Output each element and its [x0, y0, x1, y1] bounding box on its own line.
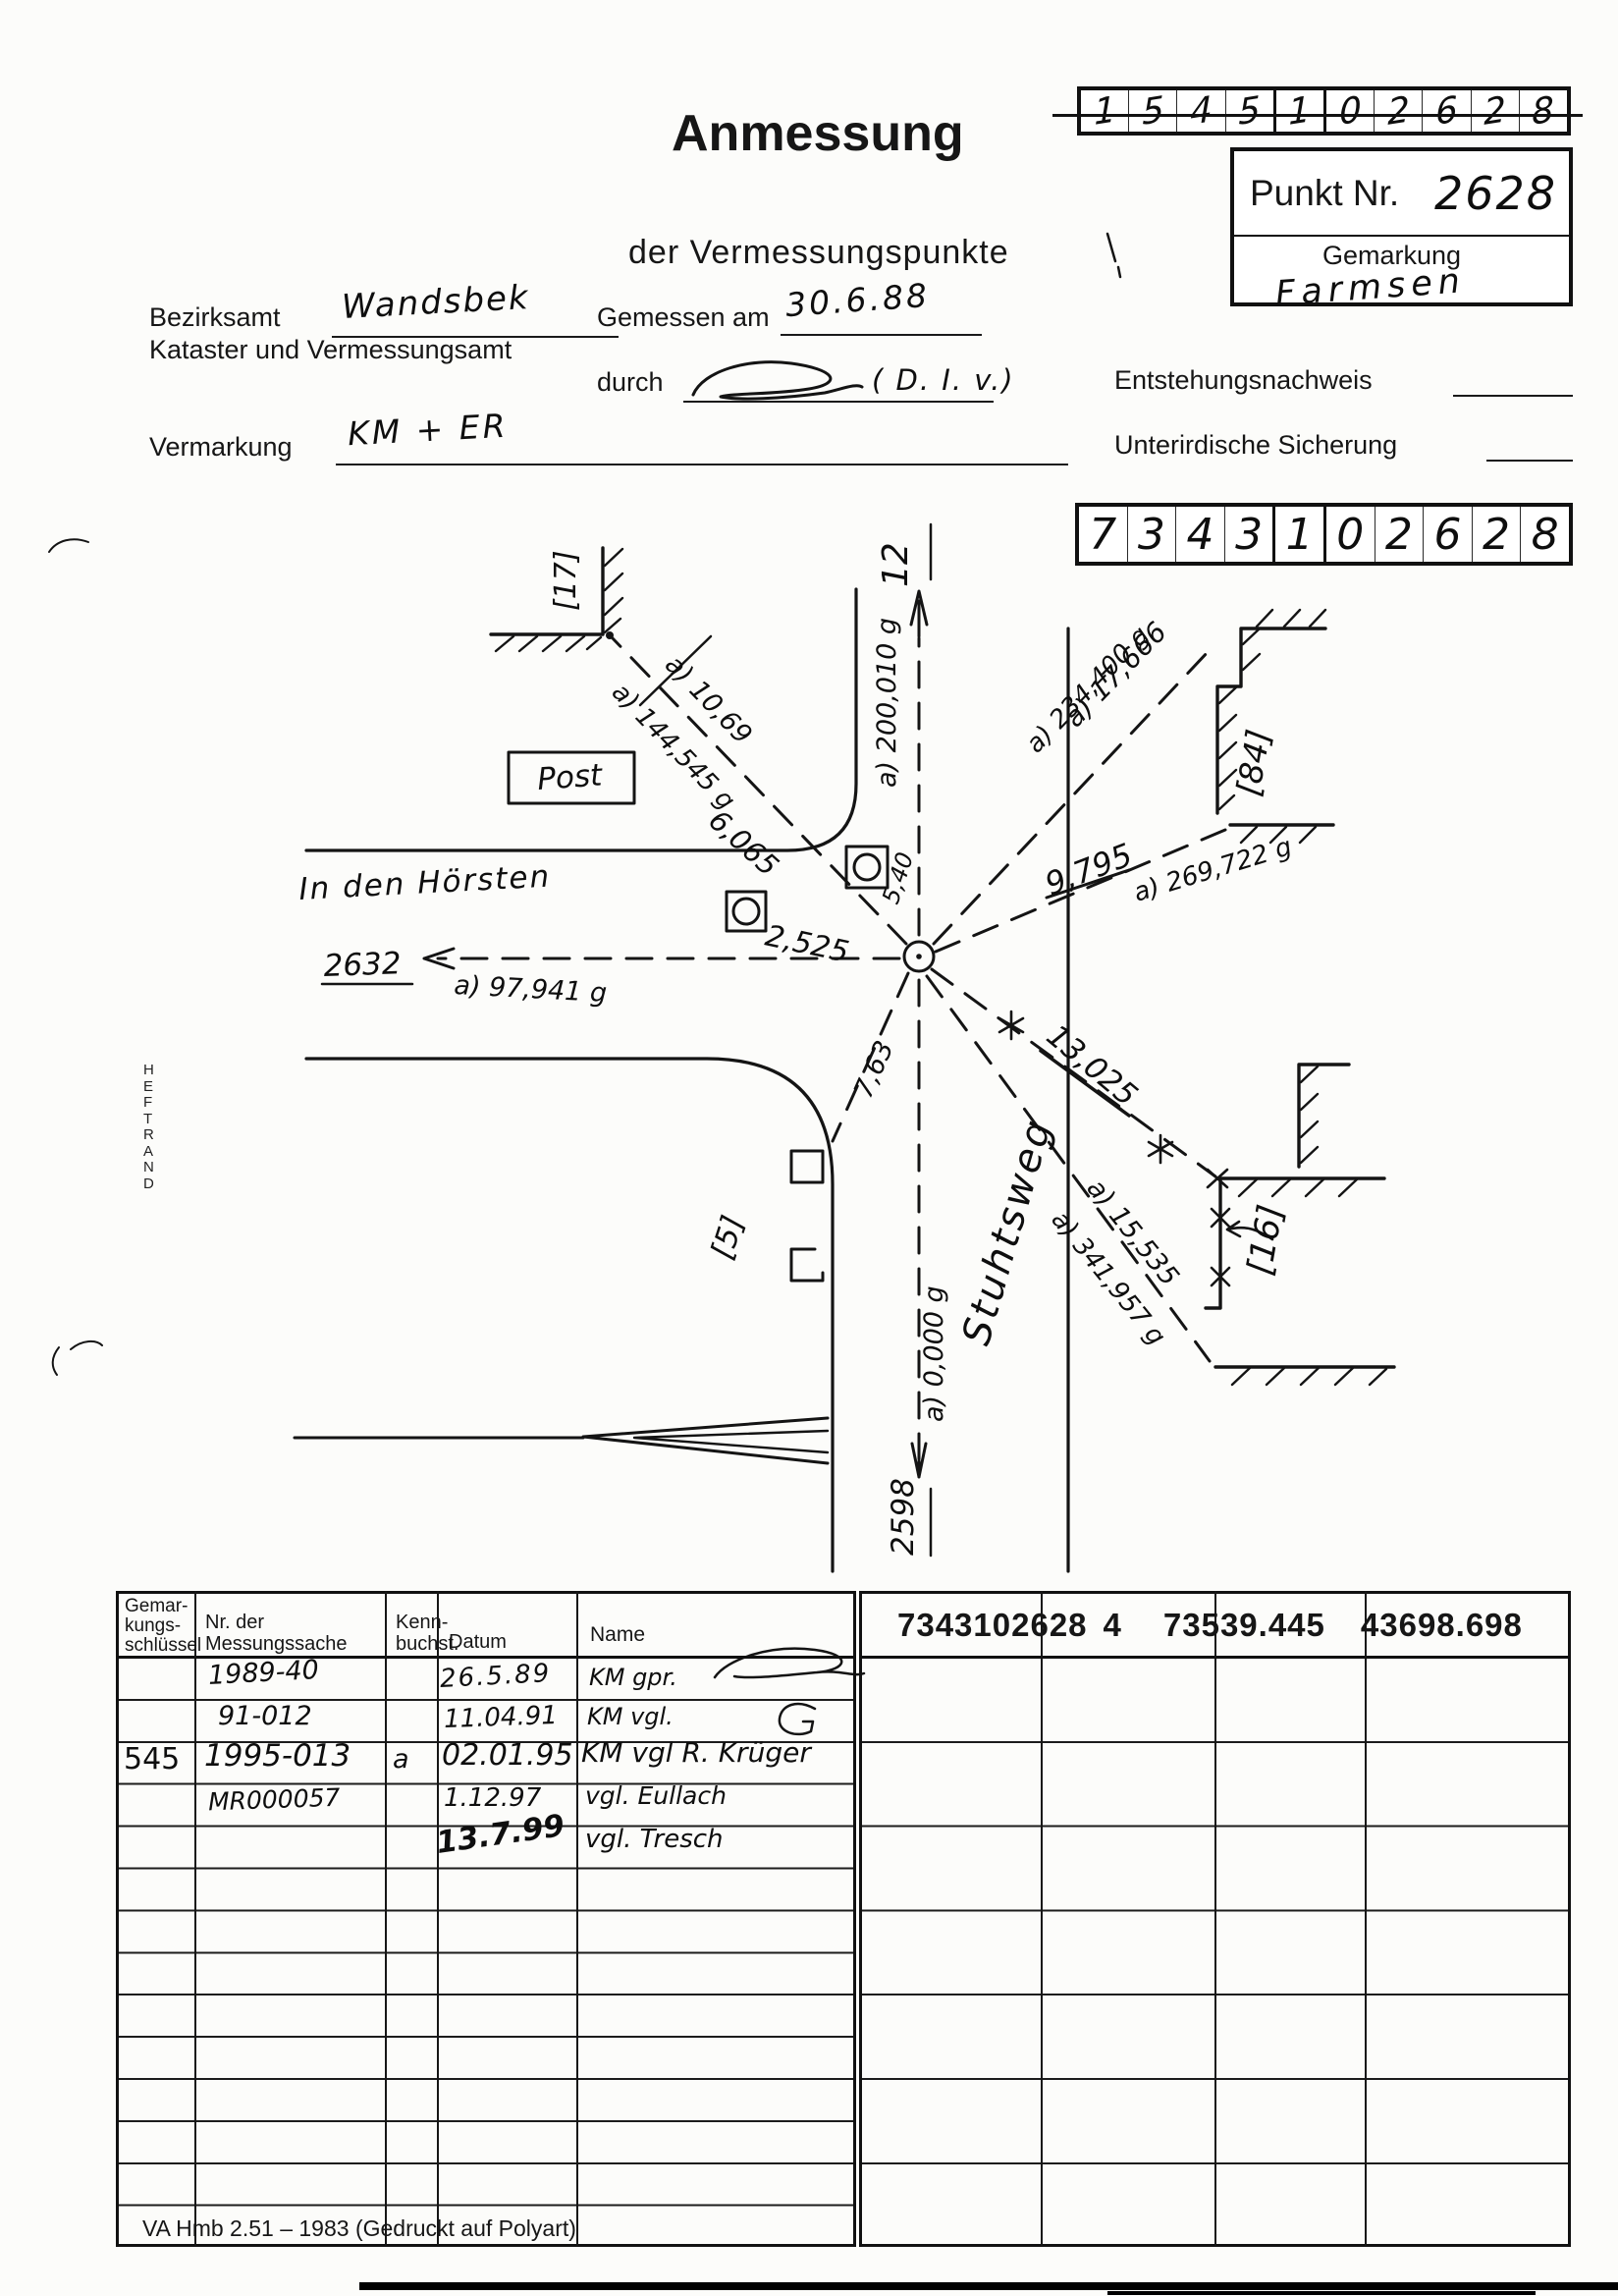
code-cell: 8 — [1520, 507, 1569, 562]
label-bearing-w: a) 97,941 g — [454, 970, 608, 1009]
scanned-survey-form: Anmessung der Vermessungspunkte Bezirksa… — [0, 0, 1618, 2296]
column-header-name: Name — [590, 1623, 645, 1647]
label-dist-small: 5,40 — [877, 848, 919, 906]
label-dist-post: 6,065 — [702, 803, 784, 883]
survey-point-symbol — [904, 942, 934, 971]
column-divider — [1365, 1591, 1367, 2247]
fence-x-marks — [1208, 1170, 1229, 1285]
column-divider — [194, 1591, 196, 2247]
label-dist-se2: a) 15,535 — [1081, 1174, 1185, 1292]
label-dist-e: 9,795 — [1040, 836, 1137, 902]
building-17-wall — [491, 548, 603, 634]
code-cell: 6 — [1422, 90, 1470, 132]
page-title: Anmessung — [672, 104, 964, 163]
corner-point-dot — [606, 631, 614, 639]
label-post: Post — [536, 757, 605, 797]
code-strip-top: 1 5 4 5 1 0 2 6 2 8 — [1077, 86, 1571, 136]
label-bearing-se: a) 341,957 g — [1046, 1206, 1171, 1351]
gemarkung-value: Farmsen — [1274, 261, 1467, 313]
label-bearing-e: a) 269,722 g — [1130, 832, 1295, 907]
scan-artifact-bar — [359, 2282, 1618, 2290]
boundary-star-marks — [999, 1011, 1172, 1163]
code-cell: 7 — [1079, 507, 1127, 562]
punkt-label: Punkt Nr. — [1250, 173, 1399, 214]
northing-value: 43698.698 — [1361, 1607, 1523, 1644]
sicherung-label: Unterirdische Sicherung — [1114, 430, 1397, 461]
code-cell: 1 — [1272, 507, 1323, 562]
entry-datum: 11.04.91 — [444, 1701, 559, 1734]
shaft-symbols — [727, 847, 888, 931]
page-subtitle: der Vermessungspunkte — [628, 234, 1009, 272]
column-divider — [1041, 1591, 1043, 2247]
gemessen-label: Gemessen am — [597, 302, 770, 333]
road-edge-north — [306, 589, 856, 850]
entry-datum: 1.12.97 — [444, 1783, 541, 1813]
kataster-label: Kataster und Vermessungsamt — [149, 335, 512, 365]
margin-squiggle-bottom — [53, 1341, 102, 1375]
ray-arrowheads — [424, 591, 927, 1477]
label-dist-ne: a) 17,666 — [1057, 616, 1172, 734]
code-cell: 5 — [1128, 90, 1176, 132]
label-point-w: 2632 — [323, 946, 402, 984]
label-building-5: [5] — [704, 1212, 751, 1264]
code-cell: 8 — [1519, 90, 1567, 132]
sicherung-underline — [1486, 432, 1573, 462]
code-cell: 3 — [1127, 507, 1176, 562]
entry-name: KM vgl. — [587, 1703, 674, 1730]
column-header-datum: Datum — [449, 1631, 507, 1654]
entry-name: KM vgl R. Krüger — [581, 1736, 811, 1769]
code-cell: 2 — [1374, 90, 1422, 132]
heftrand-label: HEFTRAND — [143, 1063, 161, 1192]
label-street-w: In den Hörsten — [298, 859, 552, 907]
label-bearing-n: a) 200,010 g — [872, 618, 902, 788]
annotation-bars — [322, 524, 1129, 1556]
entry-datum: 02.01.95 — [442, 1738, 573, 1773]
road-edge-south — [306, 1059, 833, 1571]
gemessen-underline — [781, 304, 982, 336]
stray-pen-tick — [1107, 234, 1120, 277]
bezirksamt-label: Bezirksamt — [149, 302, 281, 333]
column-divider — [576, 1591, 578, 2247]
entstehungsnachweis-underline — [1453, 367, 1573, 397]
column-header-gemarkung: Gemar- kungs- schlüssel — [125, 1597, 201, 1656]
code-cell: 1 — [1273, 90, 1323, 132]
durch-underline — [683, 369, 994, 403]
durch-label: durch — [597, 367, 664, 398]
form-footer-note: VA Hmb 2.51 – 1983 (Gedruckt auf Polyart… — [142, 2215, 576, 2242]
code-strip-strike-line — [1052, 114, 1583, 117]
label-dist-shaft: 2,525 — [762, 919, 851, 970]
code-cell: 4 — [1175, 507, 1224, 562]
label-dist-sw: 7,63 — [848, 1036, 900, 1103]
label-building-16: [16] — [1240, 1202, 1291, 1279]
sketch-labels: 12 a) 200,010 g a) 10,69 a) 144,545 g Po… — [298, 542, 1296, 1556]
entry-name: vgl. Eullach — [585, 1781, 727, 1810]
code-cell: 2 — [1471, 90, 1519, 132]
label-street-no: 12 — [876, 542, 916, 587]
column-divider — [437, 1591, 439, 2247]
measurement-rays — [438, 638, 1225, 1461]
code-cell: 5 — [1225, 90, 1273, 132]
margin-squiggle-top — [49, 539, 88, 552]
building-84-hatching — [1219, 610, 1325, 843]
label-dist-nw: a) 10,69 — [659, 649, 758, 750]
entry-nr: 91-012 — [218, 1701, 312, 1731]
punkt-box: Punkt Nr. 2628 Gemarkung Farmsen — [1230, 147, 1573, 306]
entry-nr: MR000057 — [208, 1783, 341, 1817]
label-point-s: 2598 — [886, 1478, 921, 1556]
scan-artifact-bar — [1107, 2291, 1536, 2295]
building-17-hatching — [496, 549, 622, 651]
code-cell: 0 — [1323, 90, 1374, 132]
label-bearing-ne: a) 234,400 g — [1020, 621, 1155, 759]
entstehungsnachweis-label: Entstehungsnachweis — [1114, 365, 1373, 396]
vermarkung-underline — [336, 434, 1068, 465]
point-id-number: 7343102628 — [897, 1607, 1088, 1644]
label-bearing-s: a) 0,000 g — [919, 1285, 949, 1422]
code-cell: 4 — [1176, 90, 1224, 132]
column-divider — [385, 1591, 387, 2247]
building-16-wall — [1206, 1065, 1394, 1367]
entry-datum: 26.5.89 — [439, 1659, 552, 1694]
code-cell: 2 — [1375, 507, 1424, 562]
post-box — [509, 752, 634, 803]
entry-nr: 1989-40 — [207, 1655, 319, 1691]
bezirksamt-underline — [332, 306, 619, 338]
column-divider — [1214, 1591, 1216, 2247]
punkt-value: 2628 — [1434, 167, 1557, 220]
block-5-squares — [791, 1151, 823, 1281]
entry-key: 545 — [124, 1742, 180, 1777]
label-dist-se1: 13,025 — [1040, 1018, 1144, 1114]
building-16-hatching — [1232, 1066, 1386, 1385]
label-building-17: [17] — [549, 550, 583, 611]
code-cell: 3 — [1224, 507, 1273, 562]
column-header-nr: Nr. der Messungssache — [205, 1612, 348, 1655]
building-84-wall — [1217, 629, 1333, 825]
survey-point-center — [916, 954, 922, 959]
label-street-s: Stuhtsweg — [953, 1113, 1061, 1349]
entry-name: KM gpr. — [589, 1664, 677, 1691]
code-cell: 1 — [1081, 90, 1128, 132]
direction-arrow — [295, 1418, 828, 1463]
point-id-suffix: 4 — [1104, 1607, 1122, 1644]
label-building-84: [84] — [1228, 727, 1277, 798]
code-cell: 6 — [1423, 507, 1472, 562]
code-cell: 0 — [1323, 507, 1375, 562]
entry-kenn: a — [393, 1744, 409, 1775]
code-strip-bottom: 7 3 4 3 1 0 2 6 2 8 — [1075, 503, 1573, 566]
fence-pointer-arrow — [1227, 1222, 1272, 1239]
entry-name: vgl. Tresch — [585, 1825, 724, 1854]
easting-value: 73539.445 — [1163, 1607, 1325, 1644]
entry-nr: 1995-013 — [204, 1738, 351, 1774]
label-bearing-nw: a) 144,545 g — [606, 678, 740, 816]
code-cell: 2 — [1472, 507, 1521, 562]
vermarkung-label: Vermarkung — [149, 432, 293, 463]
